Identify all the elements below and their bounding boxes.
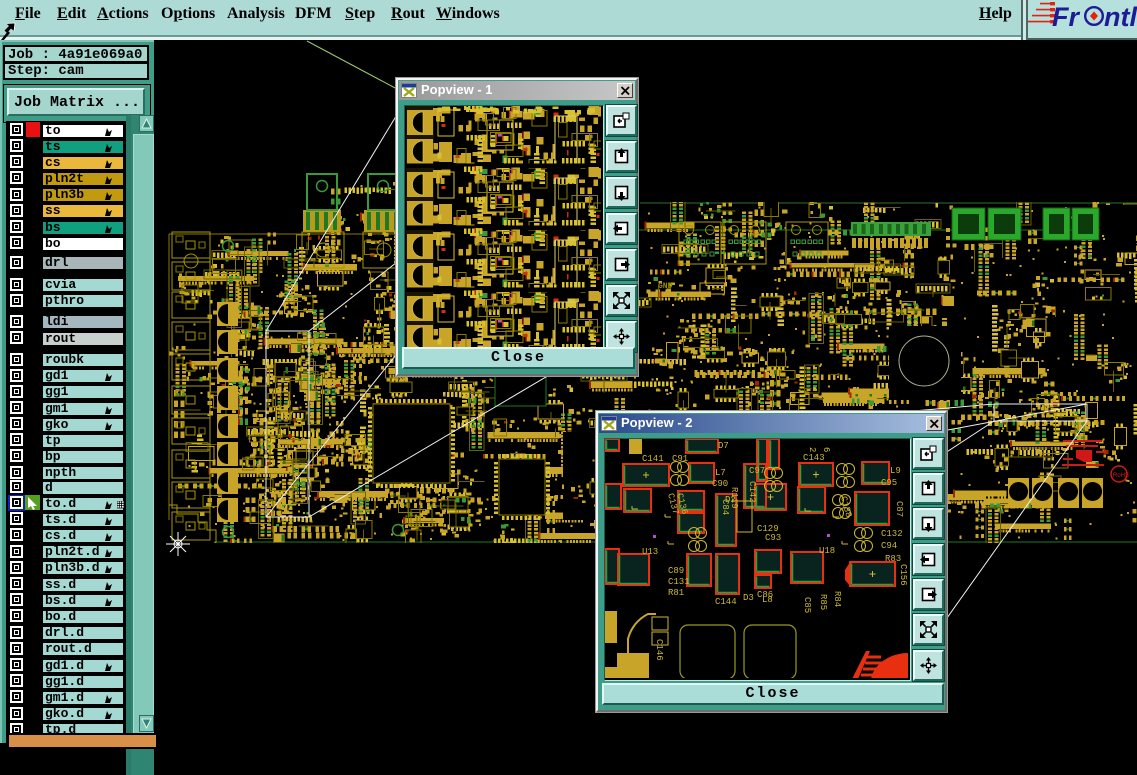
svg-text:C141: C141 xyxy=(642,454,664,464)
svg-text:C94: C94 xyxy=(881,541,897,551)
svg-text:R84: R84 xyxy=(832,591,842,607)
svg-text:RoHS: RoHS xyxy=(1113,473,1129,479)
svg-text:D3: D3 xyxy=(743,593,754,603)
svg-text:C85: C85 xyxy=(802,597,812,613)
svg-text:C142: C142 xyxy=(747,481,757,503)
svg-text:C86: C86 xyxy=(757,590,773,600)
svg-text:C156: C156 xyxy=(898,564,908,586)
svg-text:C93: C93 xyxy=(765,533,781,543)
svg-text:GND: GND xyxy=(658,282,673,291)
svg-text:C90: C90 xyxy=(712,479,728,489)
svg-text:U13: U13 xyxy=(642,547,658,557)
svg-text:C95: C95 xyxy=(881,478,897,488)
svg-text:C144: C144 xyxy=(715,597,737,607)
svg-text:R83: R83 xyxy=(885,554,901,564)
svg-text:R81: R81 xyxy=(668,588,684,598)
svg-text:C132: C132 xyxy=(881,529,903,539)
svg-text:C143: C143 xyxy=(803,453,825,463)
svg-text:L7: L7 xyxy=(715,468,726,478)
svg-text:C97: C97 xyxy=(749,466,765,476)
svg-text:ntl: ntl xyxy=(1104,2,1137,32)
svg-text:C89: C89 xyxy=(668,566,684,576)
svg-text:L9: L9 xyxy=(890,466,901,476)
svg-text:C87: C87 xyxy=(894,501,904,517)
svg-text:C91: C91 xyxy=(672,454,688,464)
svg-text:D2: D2 xyxy=(725,495,736,505)
svg-text:Fr: Fr xyxy=(1052,2,1080,32)
svg-text:R85: R85 xyxy=(818,594,828,610)
svg-text:2: 2 xyxy=(807,447,817,452)
svg-text:C146: C146 xyxy=(654,639,664,661)
svg-text:U18: U18 xyxy=(819,546,835,556)
svg-text:C131: C131 xyxy=(668,577,690,587)
svg-text:6: 6 xyxy=(821,447,831,452)
svg-text:D7: D7 xyxy=(718,441,729,451)
